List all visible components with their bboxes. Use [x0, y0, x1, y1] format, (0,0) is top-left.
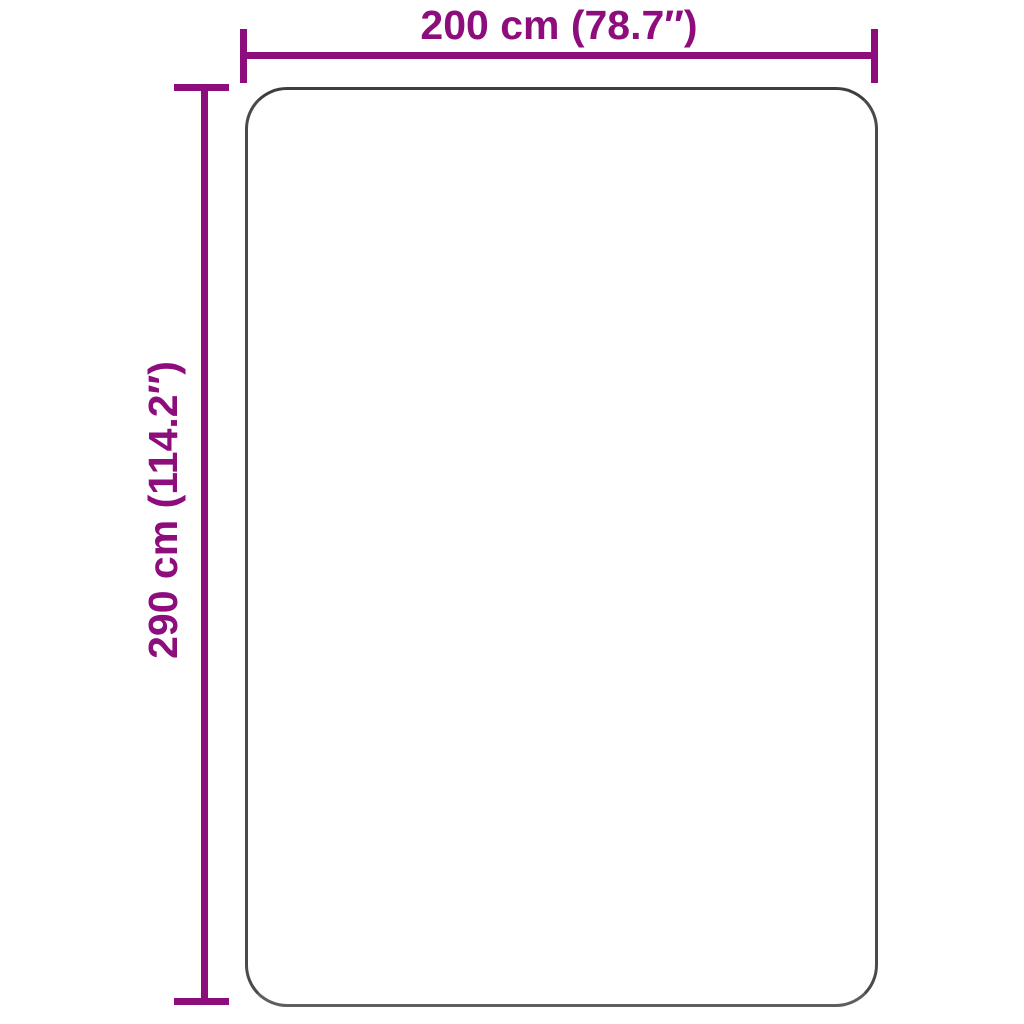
height-dimension-label: 290 cm (114.2″) [141, 310, 185, 710]
height-dimension-line [201, 84, 208, 1005]
rug-outline [245, 87, 878, 1007]
width-dimension-label: 200 cm (78.7″) [241, 3, 877, 47]
dimension-diagram: 200 cm (78.7″) 290 cm (114.2″) [0, 0, 1024, 1024]
height-dimension-top-tick [174, 84, 229, 91]
height-dimension-bottom-tick [174, 998, 229, 1005]
width-dimension-line [240, 52, 878, 59]
